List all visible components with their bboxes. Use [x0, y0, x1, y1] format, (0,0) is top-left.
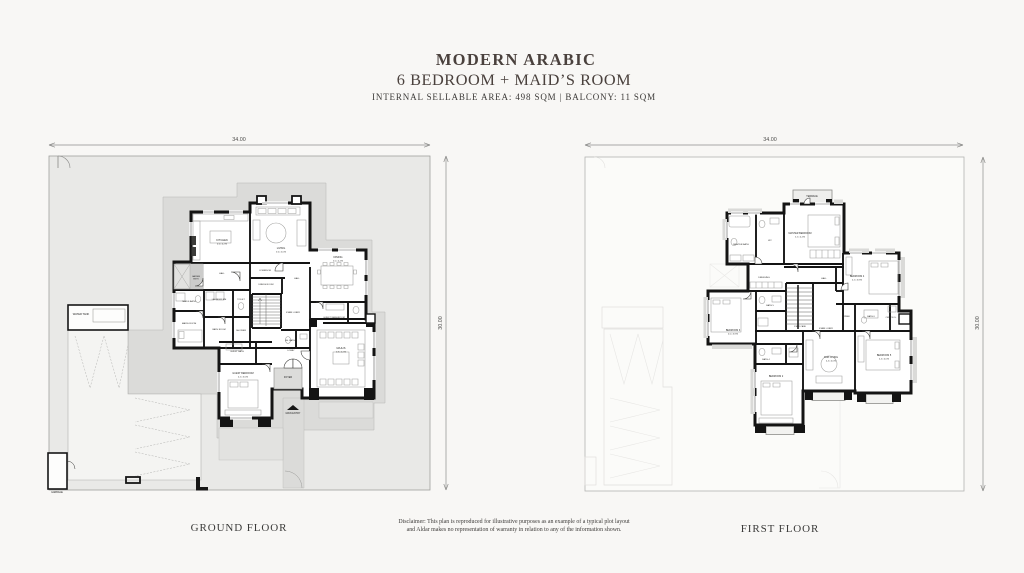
svg-text:WATER TANK: WATER TANK	[73, 312, 90, 316]
svg-text:INTERNAL SELLABLE AREA: 498 S: INTERNAL SELLABLE AREA: 498 SQM | BALCON…	[372, 92, 656, 102]
svg-text:30.00: 30.00	[975, 316, 981, 330]
svg-text:34.00: 34.00	[232, 137, 246, 143]
svg-text:DRESS ROOM: DRESS ROOM	[259, 284, 274, 286]
svg-text:TERRACE: TERRACE	[806, 195, 818, 198]
svg-text:BEDROOM 4: BEDROOM 4	[850, 275, 865, 278]
svg-text:MASTER BATH: MASTER BATH	[733, 243, 749, 246]
svg-text:TOILET: TOILET	[237, 299, 245, 301]
svg-text:and Aldar makes no representat: and Aldar makes no representation of war…	[407, 526, 622, 533]
svg-text:LIVING: LIVING	[277, 246, 286, 250]
svg-text:GARBAGE: GARBAGE	[51, 491, 63, 494]
svg-text:BEDROOM 2: BEDROOM 2	[769, 375, 784, 378]
svg-text:STAIR CASE: STAIR CASE	[794, 325, 806, 328]
svg-text:4.2 x 3.8 M: 4.2 x 3.8 M	[852, 280, 862, 282]
svg-text:WC: WC	[768, 240, 772, 242]
svg-text:LAUNDRY RM: LAUNDRY RM	[212, 298, 227, 301]
svg-text:ENTR: ENTR	[193, 279, 199, 281]
svg-text:5.2 x 4.4 M: 5.2 x 4.4 M	[795, 237, 805, 239]
svg-text:BATH 6: BATH 6	[867, 315, 875, 318]
svg-text:5.6 x 5.0 M: 5.6 x 5.0 M	[276, 252, 286, 254]
svg-text:GROUND FLOOR: GROUND FLOOR	[191, 522, 288, 534]
svg-text:MODERN ARABIC: MODERN ARABIC	[436, 50, 596, 69]
svg-text:GUEST BEDROOM: GUEST BEDROOM	[232, 372, 253, 375]
svg-text:6 BEDROOM + MAID’S ROOM: 6 BEDROOM + MAID’S ROOM	[397, 70, 631, 89]
svg-text:Disclaimer: This plan is repro: Disclaimer: This plan is reproduced for …	[398, 518, 630, 525]
svg-text:KITCHEN: KITCHEN	[216, 238, 228, 242]
svg-text:5.0 x 4.4 M: 5.0 x 4.4 M	[333, 261, 343, 263]
svg-text:FOYER: FOYER	[284, 376, 293, 379]
svg-text:HALL: HALL	[821, 277, 827, 280]
svg-text:CORRIDOR: CORRIDOR	[259, 270, 271, 272]
svg-text:4.4 x 4.0 M: 4.4 x 4.0 M	[879, 359, 889, 361]
svg-text:OFFICE S.: OFFICE S.	[886, 317, 897, 319]
svg-text:FAM. LIVING: FAM. LIVING	[824, 356, 838, 359]
svg-text:STAIR LOBBY: STAIR LOBBY	[819, 327, 834, 330]
svg-text:DRESSING: DRESSING	[758, 277, 770, 279]
svg-text:PRAY: PRAY	[844, 315, 850, 318]
svg-text:HALL: HALL	[219, 272, 225, 275]
svg-text:MAIDS ROOM: MAIDS ROOM	[182, 322, 197, 325]
svg-text:5.8 x 5.2 M: 5.8 x 5.2 M	[336, 352, 346, 354]
svg-text:4.0 x 3.8 M: 4.0 x 3.8 M	[728, 334, 738, 336]
svg-text:BEDROOM 5: BEDROOM 5	[877, 354, 892, 357]
svg-text:4.2 x 3.6 M: 4.2 x 3.6 M	[238, 377, 248, 379]
svg-text:SH. BATH: SH. BATH	[285, 339, 295, 342]
svg-text:MAJLIS: MAJLIS	[336, 346, 345, 350]
svg-text:4.6 x 4.2 M: 4.6 x 4.2 M	[217, 244, 227, 246]
svg-text:BATH ROOM: BATH ROOM	[212, 328, 225, 331]
svg-text:SHOWER: SHOWER	[236, 330, 246, 332]
svg-text:BEDROOM 3: BEDROOM 3	[726, 329, 741, 332]
svg-text:GUEST BATH: GUEST BATH	[230, 350, 244, 353]
svg-text:DINING: DINING	[333, 255, 342, 259]
svg-text:BATH 5: BATH 5	[766, 304, 774, 307]
svg-text:GUEST WASHROOM: GUEST WASHROOM	[323, 316, 345, 319]
svg-text:MASTER BEDROOM: MASTER BEDROOM	[789, 232, 812, 235]
svg-text:MAIN ENTRY: MAIN ENTRY	[286, 412, 301, 415]
svg-text:HALL: HALL	[294, 277, 300, 280]
svg-text:34.00: 34.00	[763, 137, 777, 143]
svg-text:STAIR LOBBY: STAIR LOBBY	[286, 311, 301, 314]
svg-text:BATH 4: BATH 4	[762, 358, 770, 361]
svg-text:4.4 x 4.0 M: 4.4 x 4.0 M	[826, 361, 836, 363]
svg-text:30.00: 30.00	[438, 316, 444, 330]
svg-text:FIRST FLOOR: FIRST FLOOR	[741, 523, 819, 535]
svg-text:LOBBY: LOBBY	[287, 350, 295, 352]
svg-text:MAIDS BATH: MAIDS BATH	[182, 300, 196, 303]
